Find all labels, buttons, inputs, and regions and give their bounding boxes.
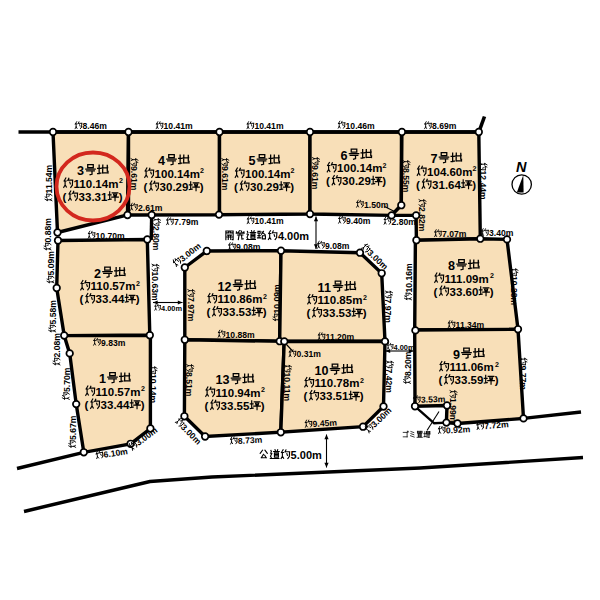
svg-text:8.20m: 8.20m: [403, 351, 413, 376]
svg-text:10.70m: 10.70m: [96, 231, 126, 241]
svg-text:10.16m: 10.16m: [404, 263, 414, 293]
svg-text:10.11m: 10.11m: [282, 373, 292, 402]
svg-text:7.42m: 7.42m: [384, 369, 394, 394]
svg-text:2: 2: [383, 162, 387, 170]
svg-text:): ): [363, 307, 367, 319]
svg-text:33.59: 33.59: [455, 374, 484, 386]
svg-text:0.88m: 0.88m: [43, 218, 53, 243]
svg-text:3.53m: 3.53m: [421, 394, 446, 405]
svg-text:10.88m: 10.88m: [226, 330, 256, 340]
svg-text:110.57m: 110.57m: [96, 386, 141, 398]
svg-text:9.45m: 9.45m: [312, 417, 337, 429]
svg-text:2.82m: 2.82m: [417, 207, 427, 232]
svg-text:(: (: [434, 286, 438, 298]
svg-text:(: (: [63, 191, 67, 203]
svg-text:11: 11: [318, 281, 331, 295]
svg-text:33.53: 33.53: [223, 306, 252, 318]
svg-text:10.63m: 10.63m: [150, 272, 160, 302]
svg-text:104.60m: 104.60m: [427, 166, 472, 178]
svg-text:2: 2: [200, 167, 204, 175]
svg-text:6: 6: [341, 149, 348, 163]
svg-text:5.58m: 5.58m: [48, 300, 58, 325]
svg-text:11.34m: 11.34m: [456, 320, 485, 330]
svg-text:33.44: 33.44: [96, 293, 125, 305]
svg-text:3.40m: 3.40m: [489, 228, 514, 238]
svg-text:110.86m: 110.86m: [218, 293, 263, 305]
svg-text:(: (: [207, 306, 211, 318]
svg-text:10.46m: 10.46m: [346, 121, 376, 131]
svg-text:): ): [200, 181, 204, 193]
svg-text:): ): [141, 399, 145, 411]
svg-text:2: 2: [360, 377, 364, 385]
svg-text:): ): [119, 191, 123, 203]
svg-text:(: (: [416, 179, 420, 191]
svg-text:): ): [136, 293, 140, 305]
svg-text:5: 5: [249, 154, 256, 168]
svg-text:31.64: 31.64: [432, 179, 461, 191]
svg-text:7.07m: 7.07m: [442, 229, 467, 239]
svg-text:4.00m: 4.00m: [394, 343, 415, 352]
svg-text:10: 10: [315, 364, 329, 378]
svg-text:): ): [290, 181, 294, 193]
svg-text:9.08m: 9.08m: [325, 241, 350, 251]
svg-text:2: 2: [136, 280, 140, 288]
svg-text:(: (: [307, 307, 311, 319]
svg-text:8.73m: 8.73m: [238, 435, 263, 446]
svg-text:0.31m: 0.31m: [297, 349, 322, 359]
svg-text:33.60: 33.60: [450, 286, 479, 298]
svg-text:): ): [261, 400, 265, 412]
svg-text:8.46m: 8.46m: [83, 121, 108, 131]
svg-text:13: 13: [216, 373, 230, 387]
svg-text:111.06m: 111.06m: [450, 361, 494, 373]
svg-text:33.53: 33.53: [323, 307, 352, 319]
svg-text:9.08m: 9.08m: [236, 242, 261, 252]
svg-text:2: 2: [490, 272, 494, 280]
svg-text:): ): [490, 286, 494, 298]
svg-text:1.99m: 1.99m: [448, 398, 458, 423]
svg-text:1.50m: 1.50m: [364, 200, 389, 210]
svg-text:(: (: [304, 390, 308, 402]
svg-text:): ): [495, 374, 499, 386]
svg-text:4.00m: 4.00m: [161, 304, 182, 313]
svg-text:(: (: [80, 293, 84, 305]
svg-text:2: 2: [94, 267, 101, 281]
svg-text:7: 7: [431, 152, 438, 166]
svg-text:11.20m: 11.20m: [326, 332, 355, 342]
svg-text:10.41m: 10.41m: [255, 216, 285, 226]
svg-text:2: 2: [263, 293, 267, 301]
svg-text:2: 2: [119, 177, 123, 185]
svg-text:9.61m: 9.61m: [220, 166, 230, 191]
svg-text:3: 3: [77, 164, 84, 178]
svg-text:(: (: [85, 399, 89, 411]
svg-text:0.92m: 0.92m: [446, 424, 471, 435]
svg-text:): ): [382, 175, 386, 187]
svg-text:110.78m: 110.78m: [315, 377, 360, 389]
svg-text:9.40m: 9.40m: [346, 216, 371, 226]
svg-text:110.57m: 110.57m: [91, 280, 136, 292]
svg-text:5.67m: 5.67m: [68, 415, 78, 440]
svg-text:30.29: 30.29: [342, 175, 371, 187]
svg-text:2.61m: 2.61m: [138, 203, 163, 213]
svg-text:7.79m: 7.79m: [174, 217, 199, 227]
svg-text:8: 8: [448, 259, 455, 273]
svg-text:): ): [263, 306, 267, 318]
svg-text:): ): [360, 390, 364, 402]
svg-text:7.97m: 7.97m: [383, 299, 393, 324]
svg-text:9.61m: 9.61m: [310, 165, 320, 190]
svg-text:11.54m: 11.54m: [44, 164, 54, 193]
svg-text:12.44m: 12.44m: [478, 171, 488, 201]
svg-text:100.14m: 100.14m: [245, 168, 290, 180]
svg-text:2.80m: 2.80m: [151, 226, 161, 251]
svg-text:100.14m: 100.14m: [337, 162, 382, 174]
svg-text:10.14m: 10.14m: [148, 374, 158, 404]
svg-text:(: (: [144, 181, 148, 193]
svg-text:33.51: 33.51: [320, 390, 349, 402]
svg-text:2: 2: [291, 167, 295, 175]
svg-text:10.41m: 10.41m: [164, 121, 194, 131]
svg-text:(: (: [205, 400, 209, 412]
svg-text:9.61m: 9.61m: [129, 166, 139, 191]
svg-text:7.97m: 7.97m: [186, 297, 196, 322]
svg-text:9.77m: 9.77m: [518, 366, 528, 391]
svg-text:2.80m: 2.80m: [392, 217, 417, 227]
svg-text:10.09m: 10.09m: [272, 284, 282, 314]
svg-text:): ): [472, 179, 476, 191]
svg-text:110.94m: 110.94m: [216, 387, 261, 399]
svg-text:2: 2: [473, 165, 477, 173]
svg-text:(: (: [439, 374, 443, 386]
svg-text:30.29: 30.29: [160, 181, 189, 193]
svg-text:8.69m: 8.69m: [432, 121, 457, 131]
svg-text:33.44: 33.44: [101, 399, 130, 411]
svg-text:30.29: 30.29: [250, 181, 279, 193]
svg-text:2: 2: [363, 294, 367, 302]
svg-text:9.83m: 9.83m: [101, 338, 126, 348]
svg-text:2.08m: 2.08m: [52, 333, 62, 358]
svg-text:1: 1: [99, 372, 106, 386]
svg-text:111.09m: 111.09m: [445, 273, 489, 285]
svg-text:2: 2: [495, 361, 499, 369]
svg-text:N: N: [516, 159, 527, 175]
svg-text:9: 9: [453, 348, 460, 362]
svg-text:(: (: [234, 181, 238, 193]
svg-text:2: 2: [261, 386, 265, 394]
svg-text:33.55: 33.55: [221, 400, 250, 412]
svg-text:33.31: 33.31: [79, 191, 108, 203]
svg-text:12: 12: [218, 280, 232, 294]
svg-text:110.14m: 110.14m: [74, 178, 119, 190]
svg-text:10.41m: 10.41m: [254, 121, 284, 131]
svg-text:10.28m: 10.28m: [509, 276, 519, 306]
svg-text:(: (: [326, 175, 330, 187]
svg-text:4: 4: [158, 154, 165, 168]
svg-text:100.14m: 100.14m: [155, 168, 200, 180]
svg-text:2: 2: [141, 385, 145, 393]
svg-text:5.70m: 5.70m: [62, 367, 72, 392]
svg-text:5.09m: 5.09m: [46, 251, 56, 276]
svg-text:5.00m: 5.00m: [291, 449, 322, 461]
svg-text:4.00m: 4.00m: [278, 230, 309, 242]
svg-text:8.55m: 8.55m: [401, 168, 411, 193]
svg-text:110.85m: 110.85m: [318, 294, 363, 306]
svg-text:8.51m: 8.51m: [184, 372, 194, 397]
